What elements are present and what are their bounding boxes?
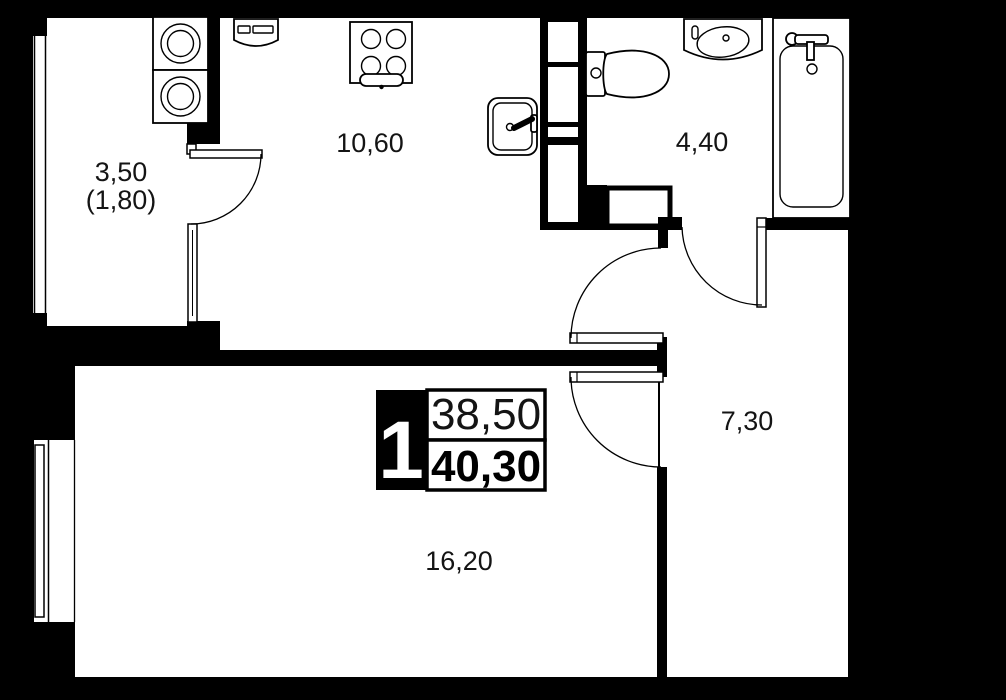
bathtub-icon — [773, 18, 850, 218]
bathroom-door-opening — [682, 218, 758, 230]
balcony-partition-window — [188, 224, 197, 322]
floor-plan: 3,50 (1,80) 10,60 4,40 7,30 16,20 1 38,5… — [0, 0, 1006, 700]
unit-total-area: 40,30 — [431, 442, 541, 491]
wall-stub-vertical — [658, 217, 668, 248]
wall-balcony-stub-top — [33, 17, 47, 37]
toilet-icon — [586, 51, 669, 98]
wall-kitchen-living — [75, 350, 667, 366]
unit-rooms-count: 1 — [378, 405, 424, 496]
balcony-area-secondary-label: (1,80) — [86, 185, 157, 215]
stove-icon — [350, 22, 412, 89]
balcony-window — [33, 36, 47, 313]
floor-plan-canvas: 3,50 (1,80) 10,60 4,40 7,30 16,20 1 38,5… — [0, 0, 1006, 700]
wall-balcony-partition-top — [208, 17, 220, 124]
kitchen-area-label: 10,60 — [336, 128, 404, 158]
wall-shaft-block — [587, 185, 607, 230]
vanity-sink-icon — [684, 19, 762, 60]
washing-machine-stack-icon — [153, 17, 208, 123]
kitchen-sink-icon — [488, 98, 537, 155]
shaft-cell-2 — [548, 67, 578, 122]
living-area-label: 16,20 — [425, 546, 493, 576]
shaft-cell-1 — [548, 22, 578, 62]
wall-balcony-partition-block — [187, 123, 220, 144]
unit-badge: 1 38,50 40,30 — [376, 390, 545, 496]
wall-living-hallway — [657, 467, 667, 677]
shaft-cell-3 — [548, 127, 578, 137]
bathroom-area-label: 4,40 — [676, 127, 729, 157]
room-living — [75, 366, 658, 677]
hallway-area-label: 7,30 — [721, 406, 774, 436]
wall-top — [33, 0, 851, 18]
wall-balcony-stub-bottom — [33, 311, 47, 328]
vent-grille-icon — [234, 19, 278, 46]
balcony-area-label: 3,50 — [95, 157, 148, 187]
shaft-cell-4 — [548, 145, 578, 222]
room-kitchen-ext — [540, 230, 660, 350]
living-window — [34, 440, 75, 622]
room-hallway — [660, 230, 850, 677]
unit-living-area: 38,50 — [431, 390, 541, 439]
